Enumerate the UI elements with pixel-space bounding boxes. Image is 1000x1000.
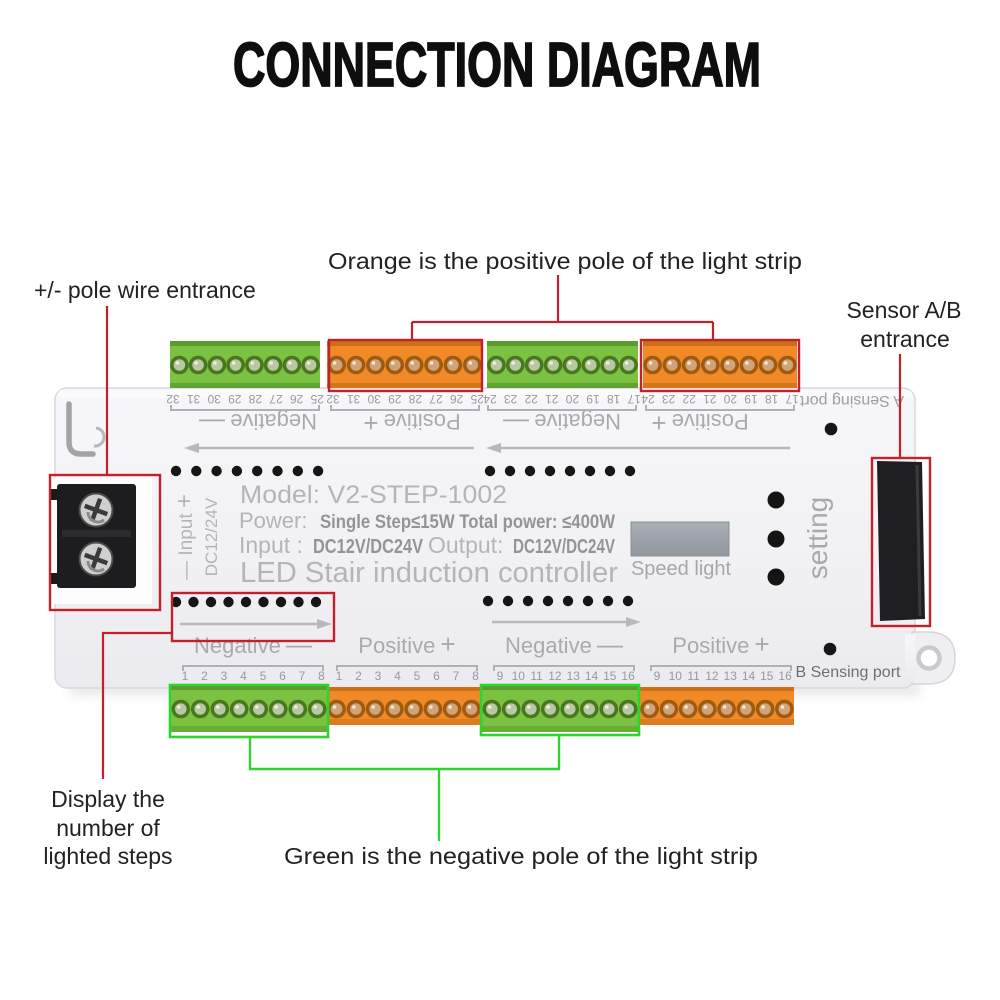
- svg-text:DC12V/DC24V: DC12V/DC24V: [513, 536, 615, 558]
- svg-text:6: 6: [433, 669, 440, 683]
- svg-text:Display the: Display the: [51, 786, 165, 812]
- svg-text:9: 9: [654, 669, 661, 683]
- svg-text:+/- pole wire entrance: +/- pole wire entrance: [34, 277, 256, 303]
- svg-text:1: 1: [336, 669, 343, 683]
- svg-text:26: 26: [450, 392, 464, 406]
- svg-text:3: 3: [221, 669, 228, 683]
- svg-text:24: 24: [483, 392, 497, 406]
- svg-text:6: 6: [279, 669, 286, 683]
- svg-text:13: 13: [724, 669, 738, 683]
- svg-text:18: 18: [607, 392, 621, 406]
- svg-text:15: 15: [603, 669, 617, 683]
- svg-text:16: 16: [778, 669, 792, 683]
- svg-text:7: 7: [453, 669, 460, 683]
- svg-text:31: 31: [187, 392, 201, 406]
- svg-text:12: 12: [548, 669, 562, 683]
- svg-text:30: 30: [207, 392, 221, 406]
- svg-text:Negative —: Negative —: [505, 629, 623, 659]
- svg-text:31: 31: [347, 392, 361, 406]
- svg-text:32: 32: [326, 392, 340, 406]
- svg-text:Positive +: Positive +: [651, 408, 748, 438]
- svg-text:19: 19: [744, 392, 758, 406]
- svg-text:4: 4: [240, 669, 247, 683]
- svg-text:LED Stair induction controller: LED Stair induction controller: [240, 557, 618, 589]
- svg-text:20: 20: [723, 392, 737, 406]
- svg-text:17: 17: [627, 392, 641, 406]
- svg-text:10: 10: [512, 669, 526, 683]
- svg-text:13: 13: [567, 669, 581, 683]
- svg-text:Negative —: Negative —: [194, 629, 312, 659]
- svg-text:11: 11: [687, 669, 700, 683]
- svg-text:Input :: Input :: [239, 532, 303, 558]
- svg-text:Single Step≤15W Total power:: Single Step≤15W Total power: ≤400W: [320, 512, 615, 533]
- svg-text:3: 3: [375, 669, 382, 683]
- svg-text:entrance: entrance: [860, 326, 950, 352]
- svg-text:Power:: Power:: [239, 508, 307, 533]
- svg-text:18: 18: [765, 392, 779, 406]
- svg-text:8: 8: [318, 669, 325, 683]
- svg-text:28: 28: [408, 392, 422, 406]
- svg-text:28: 28: [248, 392, 262, 406]
- svg-text:25: 25: [470, 392, 484, 406]
- svg-text:22: 22: [524, 392, 538, 406]
- svg-text:8: 8: [472, 669, 479, 683]
- svg-text:Green is the negative pole of: Green is the negative pole of the light …: [284, 843, 758, 869]
- svg-text:2: 2: [355, 669, 362, 683]
- svg-text:29: 29: [388, 392, 402, 406]
- svg-text:27: 27: [269, 392, 283, 406]
- svg-text:Model: V2-STEP-1002: Model: V2-STEP-1002: [240, 481, 507, 509]
- svg-text:Negative —: Negative —: [199, 408, 317, 438]
- svg-text:Negative —: Negative —: [503, 408, 621, 438]
- svg-text:25: 25: [310, 392, 324, 406]
- svg-text:21: 21: [545, 392, 559, 406]
- svg-text:16: 16: [621, 669, 635, 683]
- svg-text:14: 14: [585, 669, 599, 683]
- svg-text:number of: number of: [56, 815, 160, 841]
- svg-text:Sensor A/B: Sensor A/B: [846, 297, 961, 323]
- svg-text:DC12/24V: DC12/24V: [202, 497, 221, 576]
- svg-text:12: 12: [705, 669, 719, 683]
- svg-text:19: 19: [586, 392, 600, 406]
- svg-text:23: 23: [504, 392, 518, 406]
- svg-text:Positive +: Positive +: [363, 408, 460, 438]
- svg-text:setting: setting: [802, 497, 833, 580]
- svg-text:2: 2: [201, 669, 208, 683]
- svg-text:20: 20: [565, 392, 579, 406]
- svg-text:— Input +: — Input +: [171, 494, 198, 580]
- svg-text:26: 26: [290, 392, 304, 406]
- svg-text:1: 1: [182, 669, 189, 683]
- svg-text:Orange is the positive pole of: Orange is the positive pole of the light…: [328, 248, 802, 274]
- svg-text:5: 5: [414, 669, 421, 683]
- svg-text:17: 17: [785, 392, 799, 406]
- svg-text:23: 23: [662, 392, 676, 406]
- svg-text:11: 11: [530, 669, 543, 683]
- svg-text:DC12V/DC24V: DC12V/DC24V: [313, 536, 424, 558]
- svg-text:Positive +: Positive +: [672, 629, 769, 659]
- svg-text:7: 7: [299, 669, 306, 683]
- svg-text:24: 24: [641, 392, 655, 406]
- svg-text:A Sensing port: A Sensing port: [799, 392, 904, 409]
- svg-text:29: 29: [228, 392, 242, 406]
- svg-text:10: 10: [669, 669, 683, 683]
- svg-text:14: 14: [742, 669, 756, 683]
- svg-text:Output:: Output:: [428, 532, 503, 558]
- svg-text:9: 9: [497, 669, 504, 683]
- svg-text:21: 21: [703, 392, 717, 406]
- svg-text:5: 5: [260, 669, 267, 683]
- svg-text:B Sensing port: B Sensing port: [796, 664, 902, 681]
- svg-text:30: 30: [367, 392, 381, 406]
- svg-text:32: 32: [166, 392, 180, 406]
- svg-text:CONNECTION DIAGRAM: CONNECTION DIAGRAM: [233, 31, 761, 100]
- svg-text:lighted steps: lighted steps: [43, 843, 172, 869]
- svg-text:Positive +: Positive +: [358, 629, 455, 659]
- svg-text:4: 4: [394, 669, 401, 683]
- svg-text:Speed light: Speed light: [631, 558, 732, 580]
- svg-text:15: 15: [760, 669, 774, 683]
- svg-text:27: 27: [429, 392, 443, 406]
- svg-text:22: 22: [682, 392, 696, 406]
